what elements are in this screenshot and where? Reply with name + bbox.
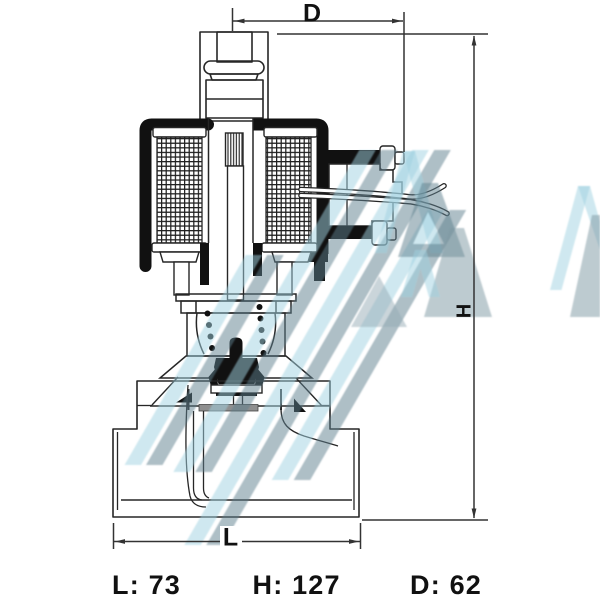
svg-text:H: H (454, 304, 476, 318)
svg-text:H: 127: H: 127 (253, 570, 341, 600)
svg-text:D: 62: D: 62 (410, 570, 482, 600)
svg-text:L: L (223, 524, 238, 552)
svg-text:L: 73: L: 73 (112, 570, 181, 600)
svg-text:D: D (303, 0, 321, 28)
